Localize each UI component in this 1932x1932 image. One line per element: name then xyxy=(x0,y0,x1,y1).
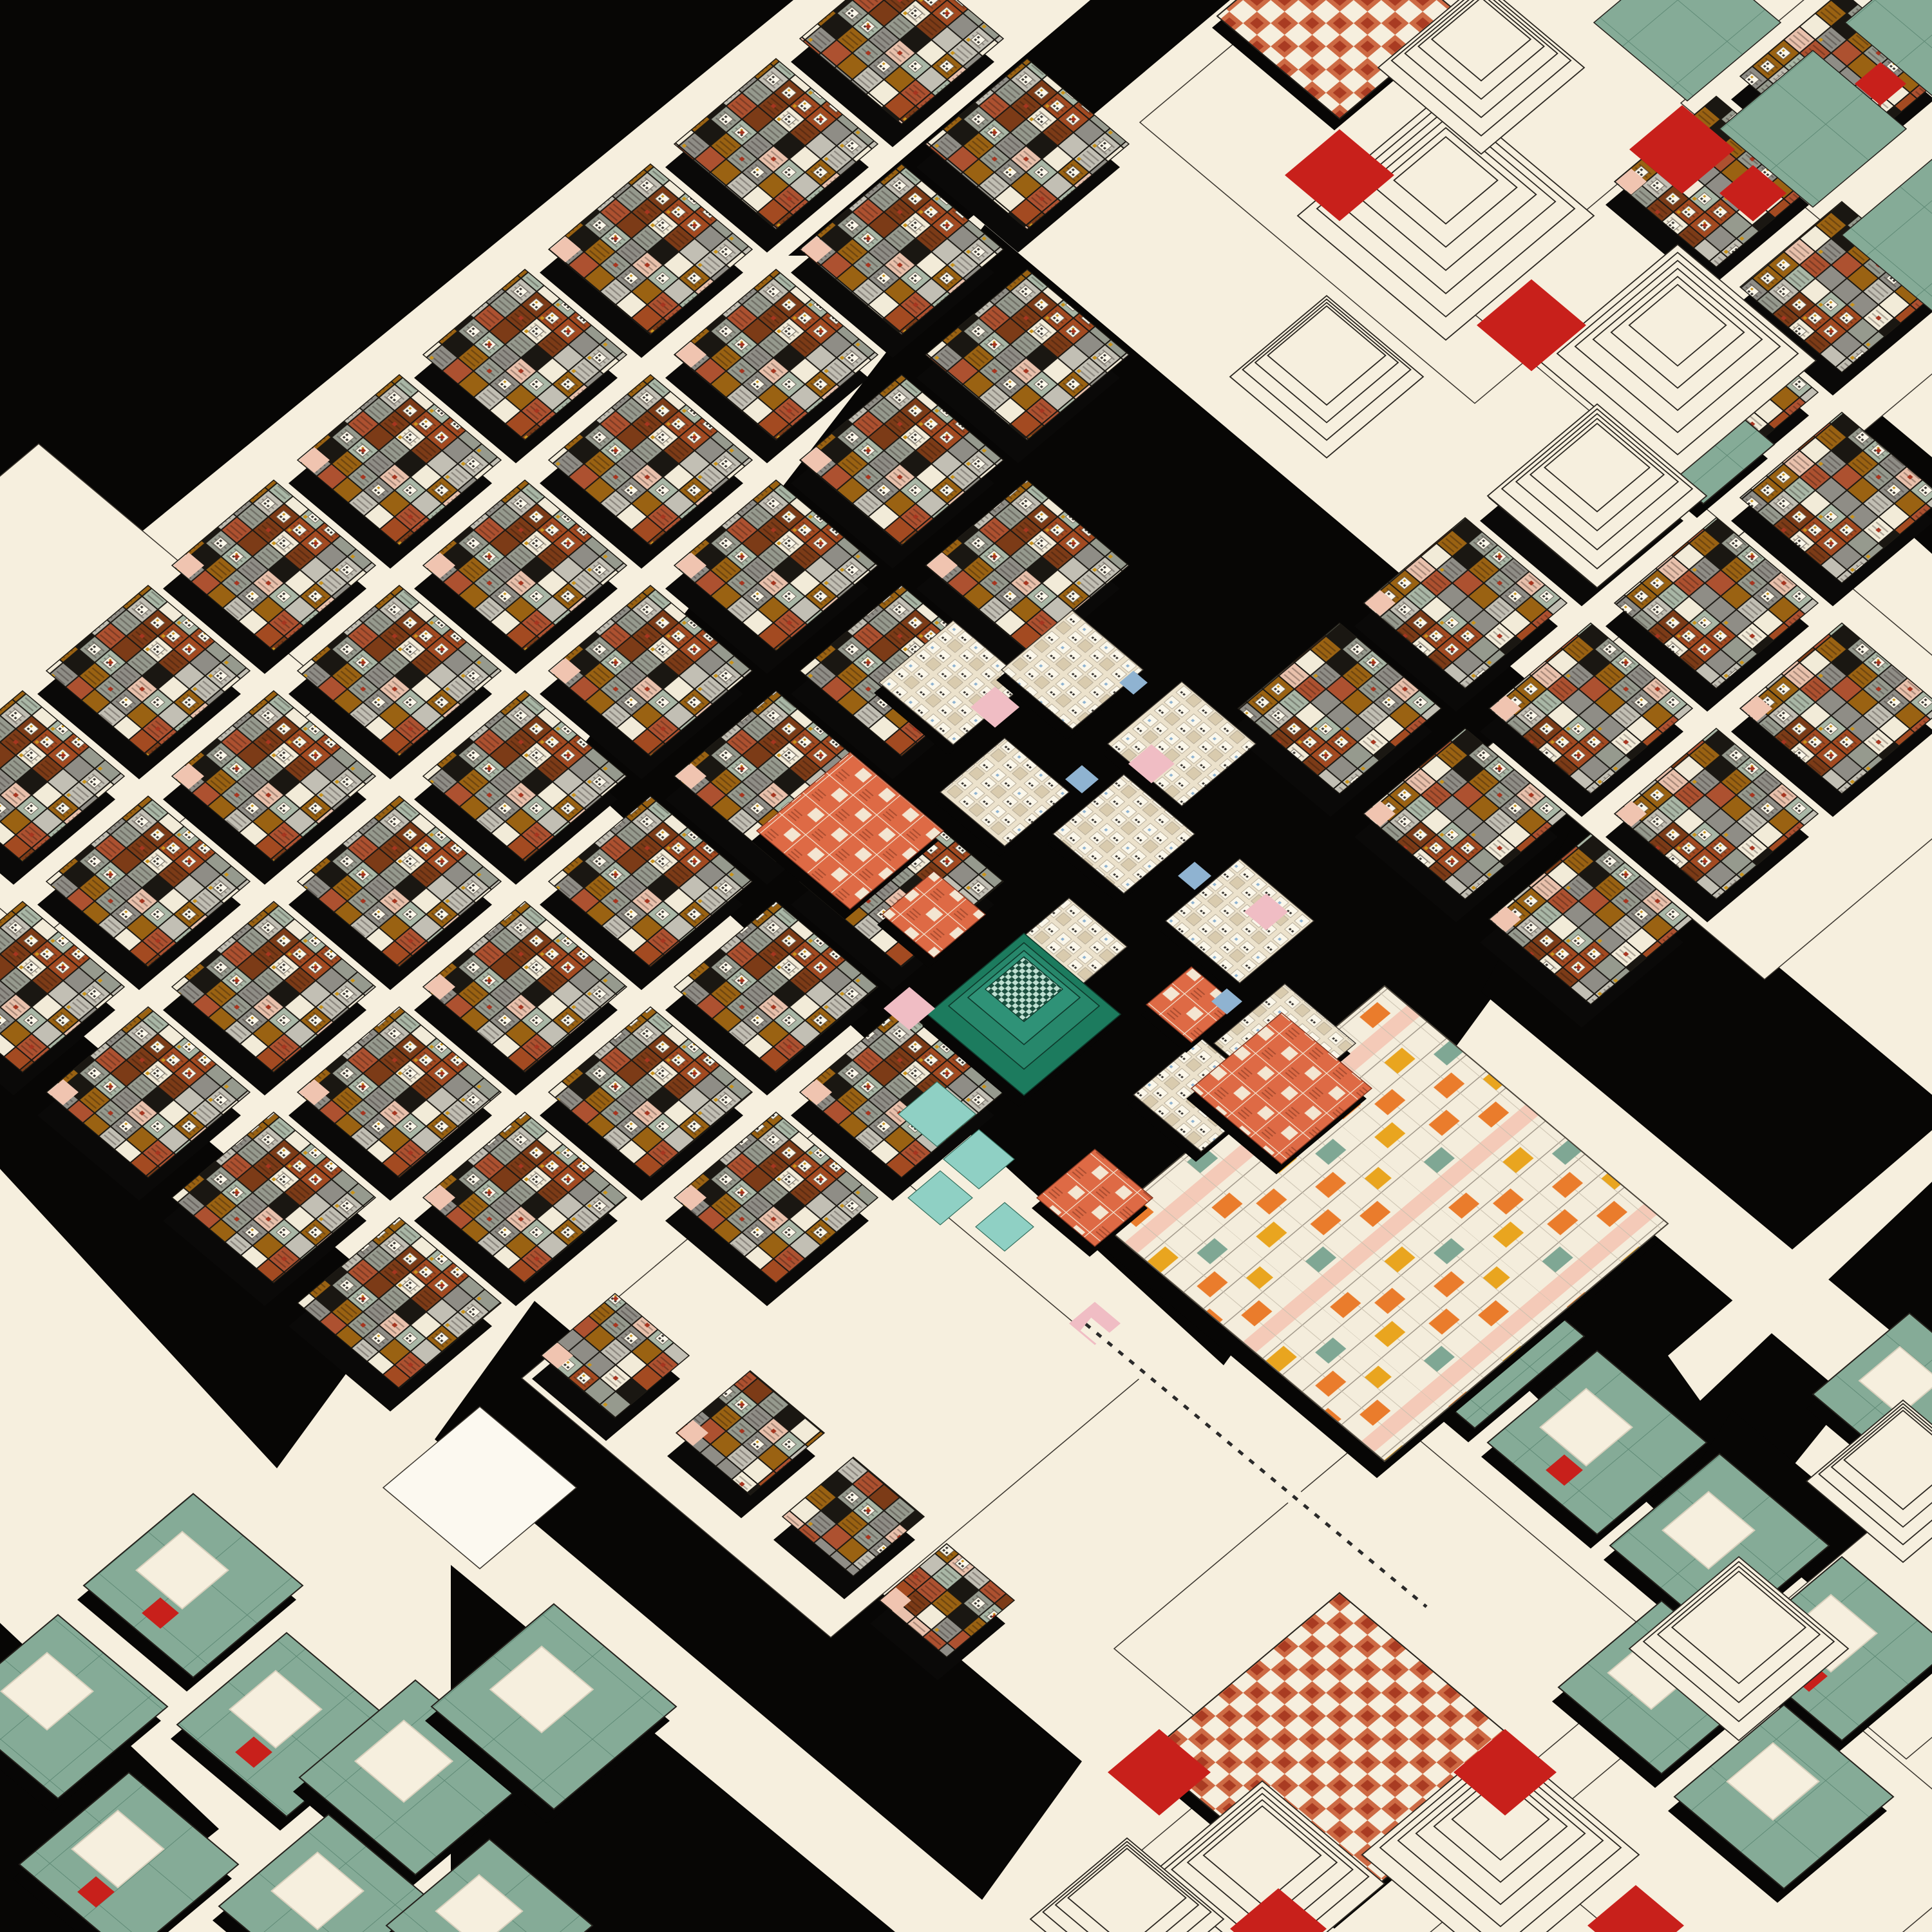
artwork-frame xyxy=(0,0,1932,1932)
generative-city-canvas xyxy=(0,0,1932,1932)
